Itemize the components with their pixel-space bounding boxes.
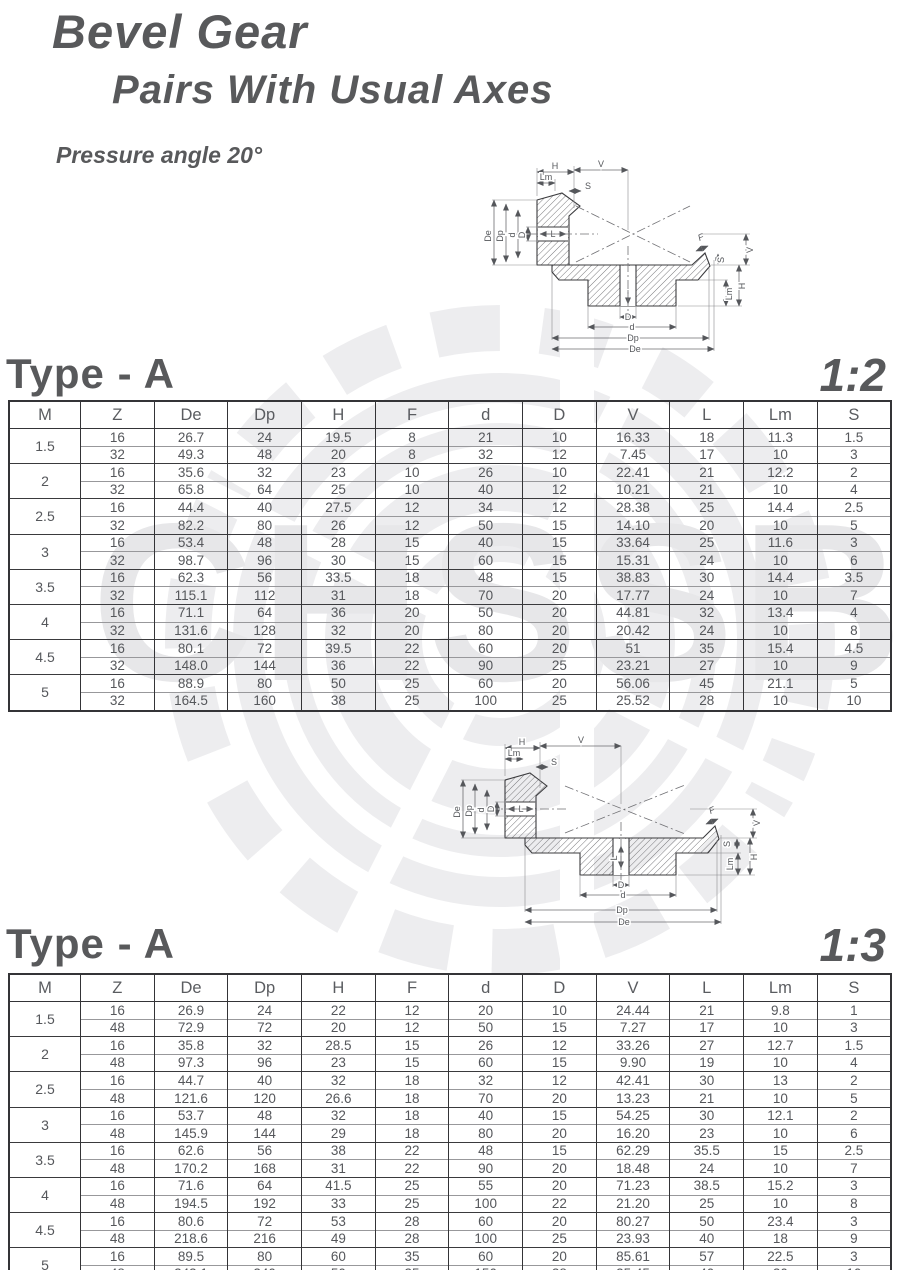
table-row: 48194.519233251002221.2025108	[9, 1195, 891, 1213]
table-cell: 4.5	[817, 640, 891, 658]
table-cell: 23.4	[744, 1213, 818, 1231]
table-cell: 17	[670, 446, 744, 464]
table-cell: 10	[817, 692, 891, 710]
table-cell: 10	[744, 587, 818, 605]
table-cell: 16	[81, 429, 155, 447]
table-cell: 60	[449, 1054, 523, 1072]
table-cell: 7.45	[596, 446, 670, 464]
column-header: L	[670, 401, 744, 429]
dim-label-de: De	[452, 806, 462, 818]
table-cell: 22	[375, 1160, 449, 1178]
bevel-gear-diagram-1-3: L L H Lm S V	[445, 720, 775, 938]
dim-label-dp-b: Dp	[616, 905, 628, 915]
table-cell: 26.9	[154, 1002, 228, 1020]
table-row: 32115.11123118702017.7724107	[9, 587, 891, 605]
table-cell: 60	[449, 640, 523, 658]
table-cell: 56.06	[596, 675, 670, 693]
table-row: 41671.66441.525552071.2338.515.23	[9, 1177, 891, 1195]
table-cell: 4	[817, 1054, 891, 1072]
table-cell: 23.93	[596, 1230, 670, 1248]
column-header: M	[9, 401, 81, 429]
table-cell: 192	[228, 1195, 302, 1213]
table-cell: 15	[523, 1107, 597, 1125]
column-header: Lm	[744, 974, 818, 1002]
table-cell: 72	[228, 640, 302, 658]
table-cell: 48	[81, 1054, 155, 1072]
table-cell: 10	[744, 1125, 818, 1143]
table-cell: 15	[523, 1019, 597, 1037]
table-cell: 20	[670, 516, 744, 534]
table-cell: 48	[81, 1125, 155, 1143]
table-cell: 18	[744, 1230, 818, 1248]
module-cell: 3	[9, 1107, 81, 1142]
module-cell: 2	[9, 464, 81, 499]
table-cell: 32	[81, 481, 155, 499]
module-cell: 4	[9, 1177, 81, 1212]
dim-label-v2: V	[752, 820, 762, 826]
table-cell: 60	[449, 1213, 523, 1231]
table-cell: 10	[744, 552, 818, 570]
table-cell: 1.5	[817, 429, 891, 447]
table-cell: 30	[670, 1107, 744, 1125]
table-cell: 30	[670, 569, 744, 587]
table-cell: 10	[744, 657, 818, 675]
table-cell: 3	[817, 1019, 891, 1037]
table-row: 1.51626.9242212201024.44219.81	[9, 1002, 891, 1020]
header-row: MZDeDpHFdDVLLmS	[9, 401, 891, 429]
column-header: S	[817, 401, 891, 429]
table-cell: 18	[375, 1125, 449, 1143]
table-cell: 65.8	[154, 481, 228, 499]
table-cell: 16.33	[596, 429, 670, 447]
table-cell: 12	[523, 1037, 597, 1055]
table-cell: 20	[302, 446, 376, 464]
table-cell: 50	[449, 516, 523, 534]
table-cell: 170.2	[154, 1160, 228, 1178]
table-cell: 3	[817, 534, 891, 552]
table-cell: 50	[302, 675, 376, 693]
table-cell: 15	[375, 1037, 449, 1055]
table-cell: 10	[744, 516, 818, 534]
table-cell: 80	[228, 1248, 302, 1266]
table-cell: 31	[302, 587, 376, 605]
column-header: D	[523, 974, 597, 1002]
table-cell: 24	[670, 622, 744, 640]
table-cell: 1	[817, 1002, 891, 1020]
table-cell: 35.5	[670, 1142, 744, 1160]
table-cell: 40	[228, 499, 302, 517]
table-cell: 80	[228, 675, 302, 693]
dim-label-d-cap: D	[486, 805, 496, 812]
table-cell: 28	[375, 1230, 449, 1248]
table-cell: 16.20	[596, 1125, 670, 1143]
table-cell: 80	[449, 622, 523, 640]
table-row: 48218.621649281002523.9340189	[9, 1230, 891, 1248]
column-header: V	[596, 401, 670, 429]
table-cell: 60	[449, 1248, 523, 1266]
dim-label-f: F	[707, 804, 717, 816]
table-cell: 17.77	[596, 587, 670, 605]
column-header: d	[449, 974, 523, 1002]
table-cell: 96	[228, 1054, 302, 1072]
dim-label-d-cap: D	[517, 231, 527, 238]
table-cell: 100	[449, 692, 523, 710]
table-cell: 10	[744, 1160, 818, 1178]
module-cell: 1.5	[9, 429, 81, 464]
table-cell: 53.7	[154, 1107, 228, 1125]
table-cell: 20	[523, 1089, 597, 1107]
table-cell: 9	[817, 1230, 891, 1248]
table-cell: 16	[81, 1213, 155, 1231]
table-cell: 7.27	[596, 1019, 670, 1037]
table-cell: 10	[744, 1054, 818, 1072]
table-cell: 20	[375, 604, 449, 622]
table-cell: 18	[375, 587, 449, 605]
table-cell: 10	[523, 429, 597, 447]
table-row: 21635.6322310261022.412112.22	[9, 464, 891, 482]
table-row: 3298.7963015601515.3124106	[9, 552, 891, 570]
table-cell: 44.7	[154, 1072, 228, 1090]
table-cell: 12	[523, 499, 597, 517]
table-cell: 7	[817, 587, 891, 605]
table-cell: 38	[302, 692, 376, 710]
table-cell: 16	[81, 464, 155, 482]
table-cell: 3	[817, 1177, 891, 1195]
table-cell: 32	[228, 1037, 302, 1055]
table-cell: 15.31	[596, 552, 670, 570]
table-cell: 2	[817, 1107, 891, 1125]
table-cell: 28	[670, 692, 744, 710]
table-cell: 32	[81, 552, 155, 570]
table-cell: 62.6	[154, 1142, 228, 1160]
table-cell: 25	[375, 1195, 449, 1213]
table-cell: 5	[817, 675, 891, 693]
table-cell: 22	[375, 657, 449, 675]
table-cell: 18	[375, 1072, 449, 1090]
table-cell: 10	[744, 1019, 818, 1037]
table-cell: 38.83	[596, 569, 670, 587]
table-cell: 28	[523, 1265, 597, 1270]
table-cell: 90	[449, 657, 523, 675]
table-cell: 24	[670, 587, 744, 605]
column-header: M	[9, 974, 81, 1002]
table-cell: 32	[302, 1072, 376, 1090]
table-cell: 53.4	[154, 534, 228, 552]
table-cell: 34	[449, 499, 523, 517]
table-cell: 64	[228, 604, 302, 622]
dim-label-d-small: d	[507, 232, 517, 237]
table-cell: 19	[670, 1054, 744, 1072]
table-row: 31653.4482815401533.642511.63	[9, 534, 891, 552]
table-cell: 144	[228, 1125, 302, 1143]
table-cell: 45	[670, 675, 744, 693]
spec-table-1-3: MZDeDpHFdDVLLmS 1.51626.9242212201024.44…	[8, 973, 892, 1270]
table-cell: 32	[81, 516, 155, 534]
table-cell: 21.1	[744, 675, 818, 693]
table-cell: 32	[81, 657, 155, 675]
table-cell: 115.1	[154, 587, 228, 605]
table-cell: 96	[228, 552, 302, 570]
table-cell: 71.6	[154, 1177, 228, 1195]
table-cell: 27	[670, 1037, 744, 1055]
column-header: L	[670, 974, 744, 1002]
table-cell: 100	[449, 1230, 523, 1248]
table-cell: 13	[744, 1072, 818, 1090]
table-cell: 36	[302, 657, 376, 675]
table-cell: 26	[449, 1037, 523, 1055]
table-cell: 5	[817, 1089, 891, 1107]
table-cell: 57	[670, 1248, 744, 1266]
table-cell: 9.90	[596, 1054, 670, 1072]
table-cell: 16	[81, 1037, 155, 1055]
table-cell: 25.52	[596, 692, 670, 710]
table-row: 21635.83228.515261233.262712.71.5	[9, 1037, 891, 1055]
dim-label-h2: H	[737, 283, 747, 290]
table-cell: 25	[302, 481, 376, 499]
table-row: 4897.396231560159.9019104	[9, 1054, 891, 1072]
table-cell: 216	[228, 1230, 302, 1248]
table-row: 2.51644.7403218321242.4130132	[9, 1072, 891, 1090]
table-cell: 41.5	[302, 1177, 376, 1195]
type-a-heading-2: Type - A	[6, 920, 175, 968]
table-cell: 25	[670, 534, 744, 552]
table-cell: 33.5	[302, 569, 376, 587]
table-cell: 48	[449, 569, 523, 587]
page-subtitle-line: Pairs With Usual Axes	[112, 68, 554, 113]
dim-label-dp: Dp	[495, 230, 505, 242]
table-cell: 16	[81, 604, 155, 622]
table-cell: 97.3	[154, 1054, 228, 1072]
table-cell: 10	[744, 622, 818, 640]
table-cell: 54.25	[596, 1107, 670, 1125]
table-cell: 22	[302, 1002, 376, 1020]
table-cell: 33.64	[596, 534, 670, 552]
table-cell: 2	[817, 1072, 891, 1090]
table-cell: 18	[375, 1089, 449, 1107]
table-cell: 38	[302, 1142, 376, 1160]
table-cell: 25	[375, 1177, 449, 1195]
table-cell: 8	[817, 622, 891, 640]
table-cell: 64	[228, 1177, 302, 1195]
table-cell: 12	[375, 1002, 449, 1020]
table-cell: 24	[228, 429, 302, 447]
table-cell: 56	[228, 1142, 302, 1160]
table-cell: 25	[523, 692, 597, 710]
table-cell: 20	[523, 1248, 597, 1266]
table-cell: 21	[670, 481, 744, 499]
table-cell: 2.5	[817, 1142, 891, 1160]
table-cell: 16	[81, 499, 155, 517]
table-cell: 10	[744, 481, 818, 499]
table-cell: 15	[523, 552, 597, 570]
table-row: 48145.91442918802016.2023106	[9, 1125, 891, 1143]
table-row: 41671.1643620502044.813213.44	[9, 604, 891, 622]
ratio-heading-1-3: 1:3	[820, 918, 886, 972]
table-cell: 20	[523, 1213, 597, 1231]
table-cell: 145.9	[154, 1125, 228, 1143]
table-cell: 3	[817, 1248, 891, 1266]
column-header: H	[302, 401, 376, 429]
table-row: 48121.612026.618702013.2321105	[9, 1089, 891, 1107]
table-cell: 29	[302, 1125, 376, 1143]
table-cell: 72	[228, 1019, 302, 1037]
table-cell: 16	[81, 1248, 155, 1266]
bevel-gear-diagram-1-2: L H Lm S V	[452, 150, 762, 360]
table-cell: 15	[523, 1142, 597, 1160]
table-cell: 49	[302, 1230, 376, 1248]
module-cell: 3.5	[9, 1142, 81, 1177]
table-cell: 12	[523, 1072, 597, 1090]
column-header: D	[523, 401, 597, 429]
table-cell: 88.9	[154, 675, 228, 693]
table-cell: 11.3	[744, 429, 818, 447]
table-cell: 9	[817, 657, 891, 675]
table-cell: 148.0	[154, 657, 228, 675]
table-cell: 20	[523, 604, 597, 622]
column-header: H	[302, 974, 376, 1002]
dim-label-v: V	[578, 735, 584, 745]
table-cell: 20	[523, 640, 597, 658]
table-cell: 15	[744, 1142, 818, 1160]
table-cell: 18	[375, 569, 449, 587]
table-cell: 48	[81, 1160, 155, 1178]
table-cell: 100	[449, 1195, 523, 1213]
table-cell: 36	[302, 604, 376, 622]
table-cell: 10	[744, 1195, 818, 1213]
table-cell: 32	[81, 622, 155, 640]
section-heading-1: Type - A 1:2	[6, 350, 894, 398]
catalog-page: CHSSB Bevel Gear Pairs With Usual Axes P…	[0, 0, 900, 1270]
table-cell: 168	[228, 1160, 302, 1178]
module-cell: 4.5	[9, 640, 81, 675]
table-cell: 4	[817, 481, 891, 499]
table-cell: 27	[670, 657, 744, 675]
module-cell: 5	[9, 1248, 81, 1270]
table-cell: 26.6	[302, 1089, 376, 1107]
table-cell: 62.29	[596, 1142, 670, 1160]
table-cell: 80	[228, 516, 302, 534]
table-cell: 72.9	[154, 1019, 228, 1037]
table-cell: 85.61	[596, 1248, 670, 1266]
column-header: Dp	[228, 401, 302, 429]
table-cell: 26	[449, 464, 523, 482]
dim-label-v: V	[598, 159, 604, 169]
table-cell: 20	[302, 1019, 376, 1037]
table-row: 51688.9805025602056.064521.15	[9, 675, 891, 693]
table-cell: 15	[375, 552, 449, 570]
table-cell: 82.2	[154, 516, 228, 534]
column-header: Z	[81, 401, 155, 429]
table-cell: 49.3	[154, 446, 228, 464]
table-cell: 80.1	[154, 640, 228, 658]
table-cell: 12.1	[744, 1107, 818, 1125]
table-cell: 40	[670, 1265, 744, 1270]
dim-label-lm: Lm	[508, 748, 521, 758]
table-cell: 24	[670, 1160, 744, 1178]
table-cell: 60	[449, 552, 523, 570]
table-cell: 20	[523, 587, 597, 605]
table-cell: 128	[228, 622, 302, 640]
table-row: 48170.21683122902018.4824107	[9, 1160, 891, 1178]
table-cell: 7	[817, 1160, 891, 1178]
table-cell: 144	[228, 657, 302, 675]
column-header: F	[375, 401, 449, 429]
module-cell: 4	[9, 604, 81, 639]
table-cell: 32	[449, 1072, 523, 1090]
table-cell: 23.21	[596, 657, 670, 675]
table-cell: 35.8	[154, 1037, 228, 1055]
header-row: MZDeDpHFdDVLLmS	[9, 974, 891, 1002]
table-cell: 35	[670, 640, 744, 658]
table-cell: 25	[375, 692, 449, 710]
table-cell: 20	[523, 1177, 597, 1195]
table-cell: 15.4	[744, 640, 818, 658]
table-cell: 18	[670, 429, 744, 447]
table-cell: 24	[228, 1002, 302, 1020]
table-cell: 10	[523, 464, 597, 482]
table-cell: 15	[523, 516, 597, 534]
dim-label-d-small: d	[476, 807, 486, 812]
table-cell: 71.1	[154, 604, 228, 622]
dim-label-dp: Dp	[464, 805, 474, 817]
table-cell: 10	[744, 1089, 818, 1107]
dim-label-lm: Lm	[540, 172, 553, 182]
table-cell: 22	[375, 640, 449, 658]
table-cell: 10	[744, 446, 818, 464]
pressure-angle-note: Pressure angle 20°	[56, 142, 262, 169]
table-cell: 16	[81, 534, 155, 552]
table-cell: 48	[228, 1107, 302, 1125]
table-cell: 16	[81, 675, 155, 693]
table-cell: 17	[670, 1019, 744, 1037]
table-cell: 39.5	[302, 640, 376, 658]
table-cell: 48	[228, 446, 302, 464]
table-cell: 20	[523, 622, 597, 640]
table-cell: 16	[81, 1072, 155, 1090]
table-cell: 10	[817, 1265, 891, 1270]
table-cell: 3	[817, 1213, 891, 1231]
table-cell: 20.42	[596, 622, 670, 640]
table-cell: 55	[449, 1177, 523, 1195]
table-cell: 25	[523, 657, 597, 675]
table-cell: 32	[81, 446, 155, 464]
column-header: De	[154, 401, 228, 429]
table-cell: 24	[670, 552, 744, 570]
table-cell: 44.4	[154, 499, 228, 517]
table-cell: 20	[523, 1160, 597, 1178]
table-cell: 40	[449, 534, 523, 552]
table-cell: 12	[375, 1019, 449, 1037]
table-cell: 15	[375, 534, 449, 552]
table-cell: 64	[228, 481, 302, 499]
table-cell: 20	[449, 1002, 523, 1020]
table-cell: 160	[228, 692, 302, 710]
table-cell: 40	[670, 1230, 744, 1248]
table-cell: 12.2	[744, 464, 818, 482]
table-cell: 194.5	[154, 1195, 228, 1213]
table-cell: 80	[449, 1125, 523, 1143]
table-cell: 56	[228, 569, 302, 587]
table-cell: 3.5	[817, 569, 891, 587]
table-cell: 27.5	[302, 499, 376, 517]
dim-label-s: S	[551, 757, 557, 767]
table-cell: 42.41	[596, 1072, 670, 1090]
table-cell: 80.27	[596, 1213, 670, 1231]
table-cell: 32	[670, 604, 744, 622]
table-cell: 31	[302, 1160, 376, 1178]
table-cell: 60	[449, 675, 523, 693]
table-row: 32131.61283220802020.4224108	[9, 622, 891, 640]
